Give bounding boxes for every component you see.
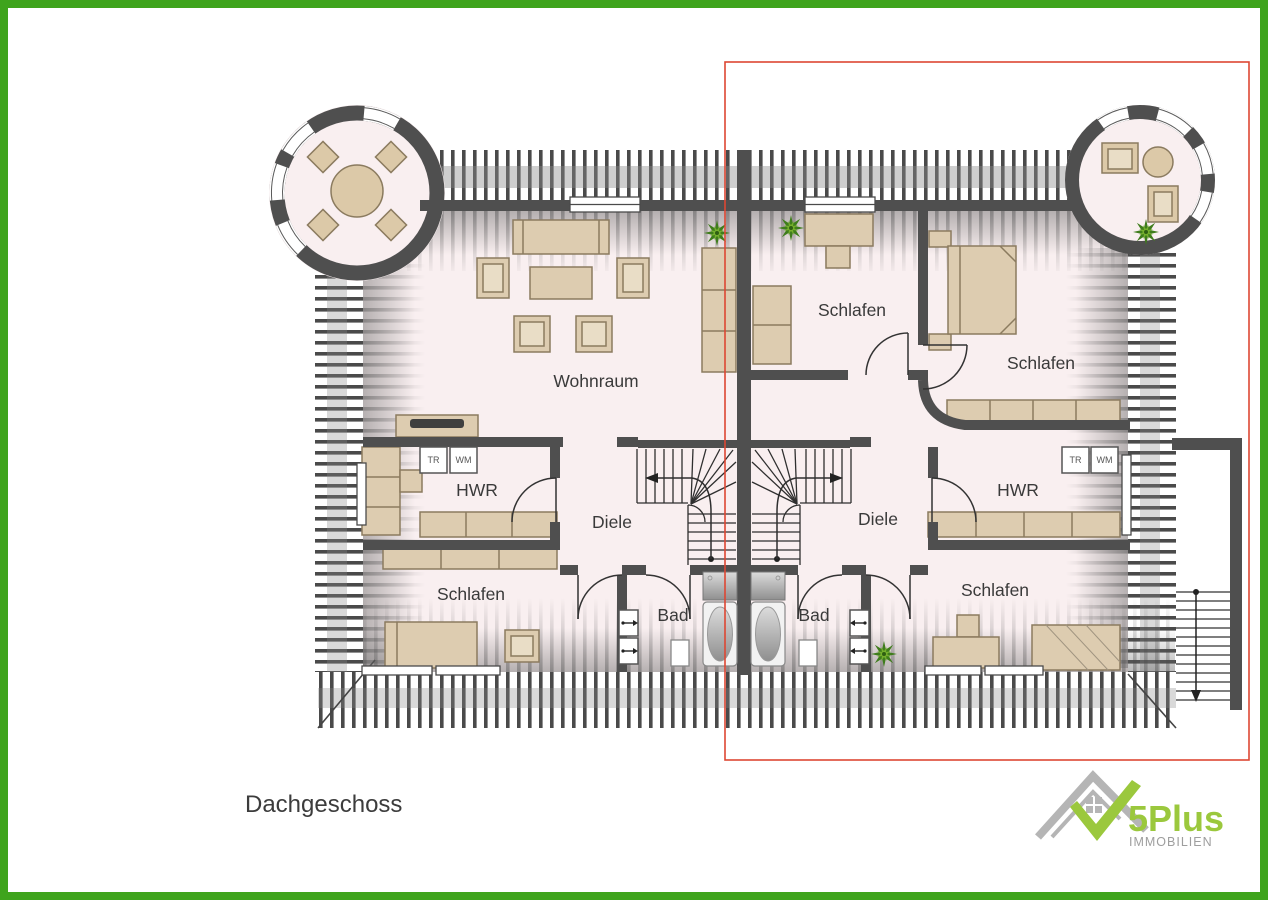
logo-subtitle-text: IMMOBILIEN bbox=[1129, 835, 1213, 849]
plant-icon bbox=[871, 641, 897, 667]
external-staircase bbox=[1172, 438, 1242, 710]
nightstand bbox=[929, 334, 951, 350]
room-label-bad-left: Bad bbox=[657, 605, 688, 625]
room-label-schlafen-bottom-right: Schlafen bbox=[961, 580, 1029, 600]
tv-sideboard bbox=[396, 415, 478, 437]
window bbox=[357, 463, 366, 525]
floorplan-svg: TR WM TR WM Wohnraum Schlafen Schlafen bbox=[0, 0, 1268, 900]
floor-title: Dachgeschoss bbox=[245, 791, 402, 818]
room-label-schlafen-bottom-left: Schlafen bbox=[437, 584, 505, 604]
armchair bbox=[477, 258, 509, 298]
window bbox=[436, 666, 500, 675]
nightstand bbox=[929, 231, 951, 247]
window bbox=[362, 666, 432, 675]
room-label-diele-right: Diele bbox=[858, 509, 898, 529]
room-label-hwr-right: HWR bbox=[997, 480, 1039, 500]
room-label-bad-right: Bad bbox=[798, 605, 829, 625]
dryer-label: TR bbox=[1070, 455, 1082, 465]
armchair bbox=[576, 316, 612, 352]
window bbox=[1122, 455, 1131, 535]
floorplan-page: TR WM TR WM Wohnraum Schlafen Schlafen bbox=[0, 0, 1268, 900]
bed bbox=[1032, 625, 1120, 670]
armchair bbox=[617, 258, 649, 298]
room-label-schlafen-top-right: Schlafen bbox=[1007, 353, 1075, 373]
washer-label: WM bbox=[1097, 455, 1113, 465]
tower-left bbox=[269, 105, 445, 281]
sofa bbox=[513, 220, 609, 254]
plant-icon bbox=[1133, 219, 1159, 245]
hwr-counter bbox=[928, 512, 1120, 537]
plant-icon bbox=[704, 220, 730, 246]
plant-icon bbox=[778, 215, 804, 241]
logo-brand-text: 5Plus bbox=[1128, 798, 1224, 839]
coffee-table bbox=[530, 267, 592, 299]
wardrobe bbox=[753, 286, 791, 364]
wardrobe bbox=[702, 248, 736, 372]
closet-row bbox=[383, 548, 557, 569]
room-label-schlafen-top-middle: Schlafen bbox=[818, 300, 886, 320]
armchair bbox=[514, 316, 550, 352]
closet-row bbox=[947, 400, 1120, 422]
dryer-label: TR bbox=[428, 455, 440, 465]
double-bed bbox=[948, 246, 1016, 334]
room-label-diele-left: Diele bbox=[592, 512, 632, 532]
tower-right bbox=[1065, 105, 1215, 255]
party-wall bbox=[737, 150, 751, 675]
armchair bbox=[505, 630, 539, 662]
window bbox=[925, 666, 981, 675]
room-label-hwr-left: HWR bbox=[456, 480, 498, 500]
room-label-wohnraum: Wohnraum bbox=[553, 371, 638, 391]
bed bbox=[385, 622, 477, 668]
washer-label: WM bbox=[456, 455, 472, 465]
window bbox=[985, 666, 1043, 675]
